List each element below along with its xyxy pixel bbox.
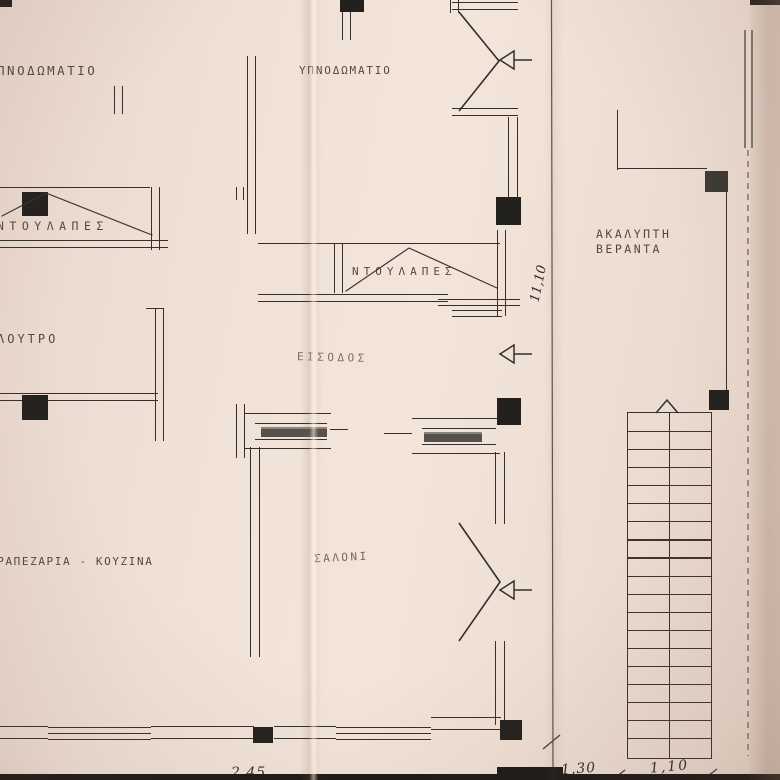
room-label-veranda-line1: ΑΚΑΛΥΠΤΗ <box>596 227 671 241</box>
wall-bedroom-left-jamb <box>114 86 123 114</box>
wall-bedrooms-divider <box>247 56 256 234</box>
fold-crease <box>544 0 564 780</box>
scan-edge-bottom <box>0 774 780 780</box>
column <box>340 0 364 12</box>
column <box>497 398 521 425</box>
wall-closet-left-jamb <box>151 187 160 250</box>
wall-entrance-cap <box>452 310 502 317</box>
room-label-bathroom: ΛΟΥΤΡΟ <box>0 332 58 346</box>
wall-south-2 <box>151 726 254 739</box>
stair-tread <box>628 449 711 450</box>
sliding-door-right-track <box>384 433 412 434</box>
stair-tread <box>628 576 711 577</box>
stair-tread <box>628 594 711 595</box>
window-salon <box>336 727 431 740</box>
floor-plan-sheet: ΥΠΝΟΔΩΜΑΤΙΟ ΥΠΝΟΔΩΜΑΤΙΟ ΝΤΟΥΛΑΠΕΣ ΝΤΟΥΛΑ… <box>0 0 780 780</box>
dimension-tick <box>543 735 560 749</box>
stair-tread <box>628 684 711 685</box>
wall-bedroom-mid-south-east <box>452 108 518 116</box>
stair-tread <box>628 539 711 540</box>
stair-tread <box>628 612 711 613</box>
wall-north-east <box>452 2 518 10</box>
wall-salon-east-upper <box>495 452 505 524</box>
room-label-veranda-line2: ΒΕΡΑΝΤΑ <box>596 242 662 256</box>
staircase-center-line <box>669 413 670 758</box>
wall-bathroom-east <box>155 308 164 441</box>
column <box>253 727 273 743</box>
wall-closet-mid-left <box>334 243 343 293</box>
door-arrow-icon <box>500 51 532 69</box>
column <box>709 390 729 410</box>
wall-divider-jamb <box>236 187 244 200</box>
wall-south-4 <box>431 717 501 730</box>
wall-bathroom-east-cap <box>146 308 164 309</box>
room-label-living-room: ΣΑΛΟΝΙ <box>314 550 369 566</box>
veranda-wall-east <box>726 192 727 390</box>
wall-closet-mid-top <box>258 243 500 244</box>
column <box>705 171 728 192</box>
door-arrow-icon <box>500 345 532 363</box>
wall-east-upper <box>508 117 518 199</box>
room-label-dining-kitchen: ΤΡΑΠΕΖΑΡΙΑ - ΚΟΥΖΙΝΑ <box>0 555 153 568</box>
dimension-right-vertical: 11,10 <box>528 244 555 304</box>
stair-tread <box>628 485 711 486</box>
veranda-wall-north <box>617 168 707 169</box>
window-chevron-salon <box>459 523 500 641</box>
wall-closet-left-bottom <box>0 240 168 248</box>
wall-salon-east-lower <box>495 641 505 725</box>
wall-closet-mid-bottom <box>258 294 448 302</box>
column <box>22 192 48 216</box>
stair-tread <box>628 521 711 522</box>
wall-south-1 <box>0 726 48 739</box>
wall-south-3 <box>274 726 336 739</box>
stair-tread <box>628 431 711 432</box>
scan-edge-artifact <box>0 0 12 7</box>
wall-top-stub <box>342 10 351 40</box>
column <box>496 197 521 225</box>
stair-tread <box>628 467 711 468</box>
stair-tread <box>628 648 711 649</box>
wall-closet-mid-right <box>497 230 506 316</box>
room-label-bedroom-middle: ΥΠΝΟΔΩΜΑΤΙΟ <box>299 64 392 77</box>
room-label-entrance: ΕΙΣΟΔΟΣ <box>297 350 368 365</box>
stair-tread <box>628 630 711 631</box>
wall-sliding-left-jamb <box>236 404 245 458</box>
stair-tread <box>628 666 711 667</box>
sliding-door-left <box>245 413 331 449</box>
room-label-bedroom-left: ΥΠΝΟΔΩΜΑΤΙΟ <box>0 63 97 78</box>
paper-edge-shading <box>750 0 780 780</box>
wall-entrance-north <box>438 299 520 306</box>
door-arrow-icon <box>500 581 532 599</box>
sliding-door-right <box>412 418 500 454</box>
stair-tread <box>628 503 711 504</box>
stair-tread <box>628 557 711 558</box>
wall-dining-salon-divider <box>250 447 260 657</box>
scan-edge-artifact <box>497 767 563 780</box>
window-kitchen <box>48 727 151 740</box>
sliding-door-left-track <box>330 429 348 430</box>
stair-tread <box>628 720 711 721</box>
column <box>22 395 48 420</box>
stair-tread <box>628 702 711 703</box>
scan-edge-artifact <box>750 0 780 5</box>
staircase <box>627 412 712 759</box>
room-label-closet-middle: ΝΤΟΥΛΑΠΕΣ <box>352 265 457 278</box>
lot-boundary-line <box>552 0 554 780</box>
stair-tread <box>628 738 711 739</box>
window-chevron-top <box>459 12 499 111</box>
room-label-closet-left: ΝΤΟΥΛΑΠΕΣ <box>0 219 109 233</box>
wall-closet-left-top <box>0 187 150 188</box>
fold-crease <box>300 0 322 780</box>
column <box>500 720 522 740</box>
veranda-wall-west <box>617 110 618 170</box>
